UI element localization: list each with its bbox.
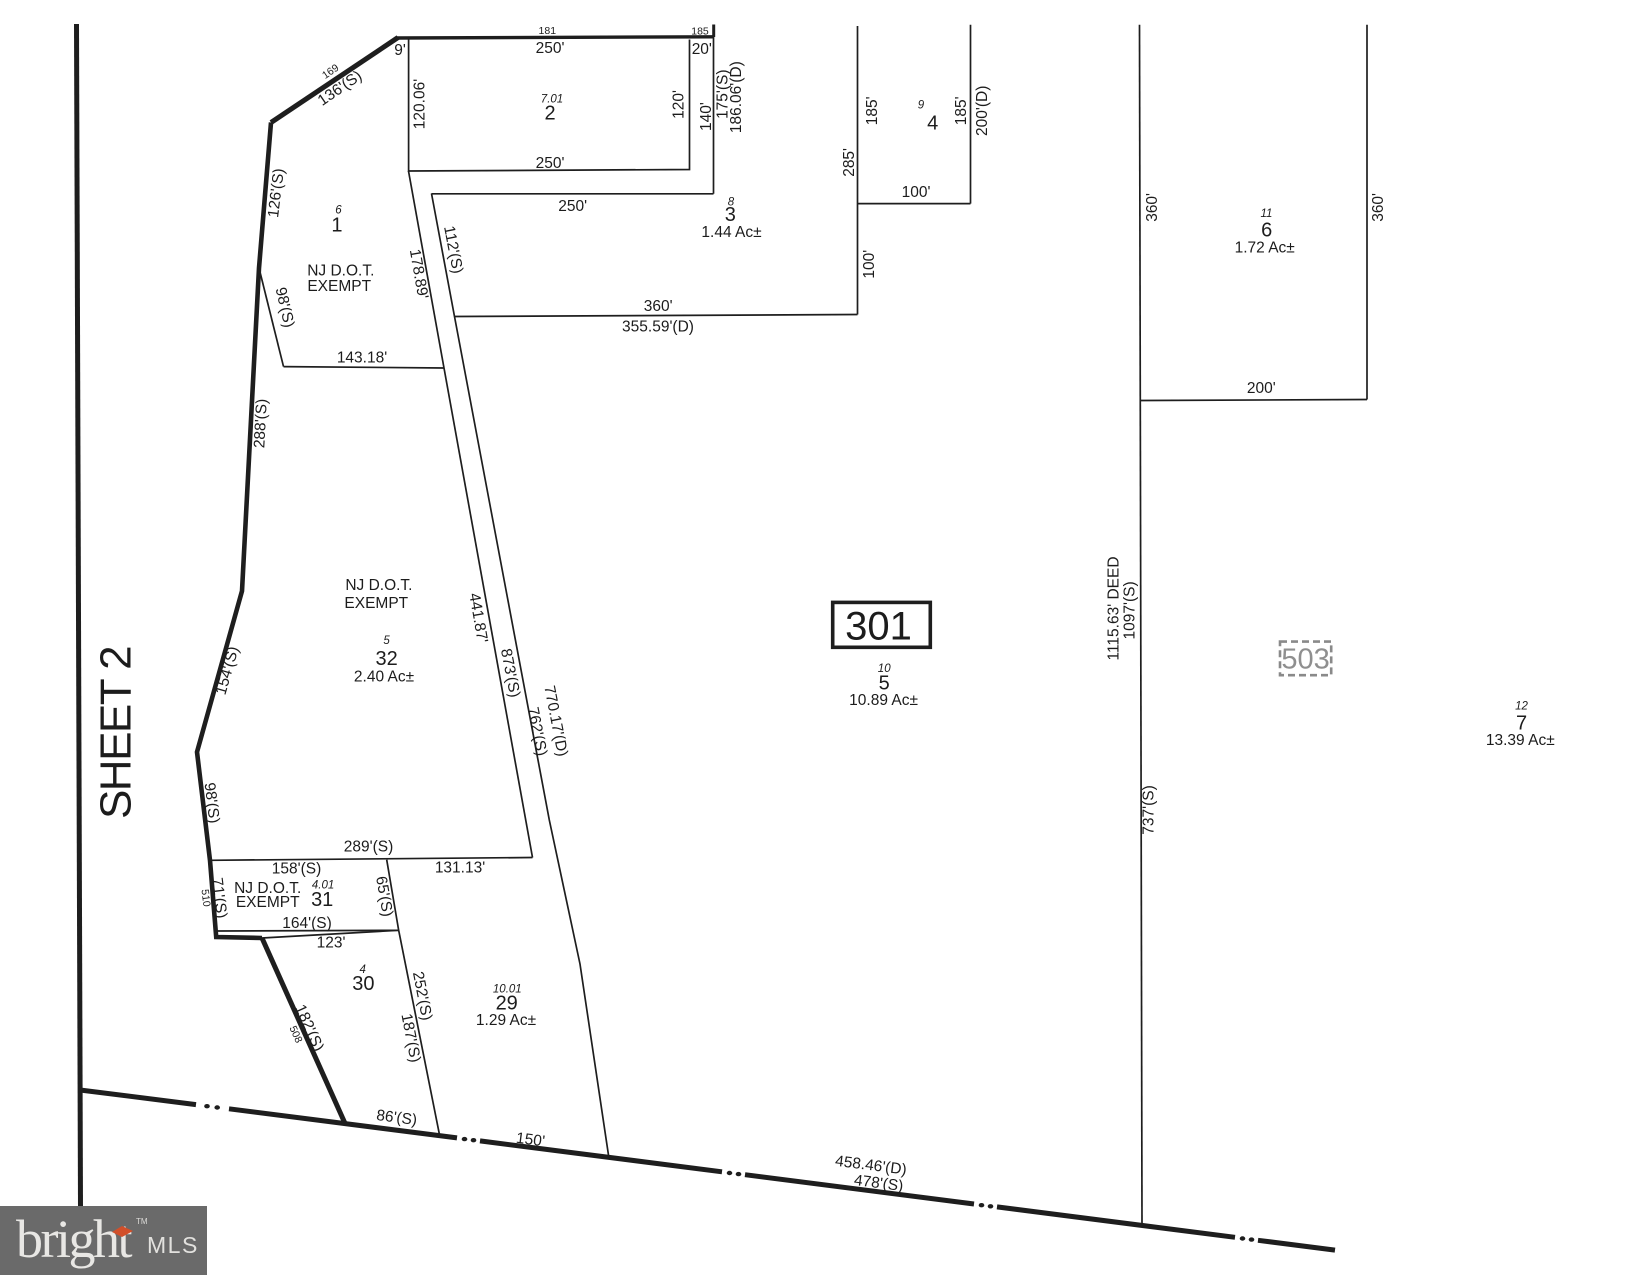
- svg-text:285': 285': [841, 148, 858, 177]
- svg-text:123': 123': [317, 935, 346, 952]
- svg-text:100': 100': [902, 184, 931, 201]
- svg-text:185': 185': [864, 96, 881, 125]
- svg-text:30: 30: [352, 973, 374, 995]
- svg-text:360': 360': [1144, 193, 1161, 222]
- svg-text:1115.63' DEED: 1115.63' DEED: [1105, 556, 1122, 660]
- svg-text:10.89 Ac±: 10.89 Ac±: [849, 692, 918, 709]
- svg-text:9: 9: [918, 100, 925, 112]
- svg-text:bright: bright: [16, 1209, 132, 1269]
- svg-text:301: 301: [845, 605, 912, 649]
- svg-text:150': 150': [515, 1130, 546, 1151]
- svg-text:250': 250': [536, 40, 565, 57]
- svg-text:200': 200': [1247, 380, 1276, 397]
- svg-text:185': 185': [953, 96, 970, 125]
- svg-text:158'(S): 158'(S): [272, 861, 321, 878]
- svg-text:100': 100': [861, 250, 878, 279]
- svg-text:140': 140': [698, 102, 715, 131]
- svg-text:EXEMPT: EXEMPT: [344, 595, 408, 612]
- svg-text:20': 20': [692, 41, 712, 58]
- svg-text:288'(S): 288'(S): [251, 398, 271, 448]
- svg-text:2.40 Ac±: 2.40 Ac±: [354, 669, 415, 686]
- svg-text:12: 12: [1515, 701, 1528, 713]
- svg-text:1.44 Ac±: 1.44 Ac±: [701, 224, 762, 241]
- svg-text:120.06': 120.06': [412, 79, 429, 129]
- svg-text:1: 1: [331, 215, 342, 237]
- svg-text:EXEMPT: EXEMPT: [236, 894, 300, 911]
- svg-text:1.29 Ac±: 1.29 Ac±: [476, 1012, 537, 1029]
- svg-text:120': 120': [670, 90, 687, 119]
- svg-text:164'(S): 164'(S): [282, 915, 331, 932]
- svg-text:1097'(S): 1097'(S): [1122, 581, 1139, 639]
- svg-text:250': 250': [536, 155, 565, 172]
- svg-text:185: 185: [691, 26, 709, 38]
- svg-text:181: 181: [539, 25, 557, 37]
- svg-text:MLS: MLS: [147, 1232, 199, 1258]
- svg-text:1.72 Ac±: 1.72 Ac±: [1235, 240, 1296, 257]
- svg-text:143.18': 143.18': [337, 350, 387, 367]
- svg-text:5: 5: [383, 635, 390, 647]
- svg-text:TM: TM: [136, 1217, 148, 1226]
- svg-text:360': 360': [644, 298, 673, 315]
- svg-text:4: 4: [927, 113, 938, 135]
- svg-text:186.06'(D): 186.06'(D): [728, 61, 745, 133]
- svg-text:3: 3: [725, 204, 736, 226]
- svg-text:EXEMPT: EXEMPT: [307, 278, 371, 295]
- svg-text:NJ D.O.T.: NJ D.O.T.: [345, 577, 412, 594]
- svg-text:31: 31: [311, 889, 333, 911]
- svg-text:9': 9': [394, 42, 406, 59]
- svg-text:13.39 Ac±: 13.39 Ac±: [1486, 732, 1555, 749]
- svg-text:289'(S): 289'(S): [344, 839, 393, 856]
- svg-text:510: 510: [198, 889, 212, 908]
- svg-text:2: 2: [544, 103, 555, 125]
- svg-text:737'(S): 737'(S): [1141, 785, 1158, 834]
- svg-text:131.13': 131.13': [435, 860, 485, 877]
- svg-text:200'(D): 200'(D): [974, 86, 991, 136]
- svg-text:355.59'(D): 355.59'(D): [622, 319, 694, 336]
- svg-text:6: 6: [1261, 220, 1272, 242]
- svg-text:503: 503: [1281, 643, 1329, 675]
- svg-text:360': 360': [1370, 193, 1387, 222]
- svg-text:250': 250': [558, 198, 587, 215]
- svg-text:11: 11: [1261, 208, 1273, 220]
- svg-text:29: 29: [496, 992, 518, 1014]
- svg-text:NJ D.O.T.: NJ D.O.T.: [307, 263, 374, 280]
- svg-text:32: 32: [375, 648, 397, 670]
- svg-text:SHEET 2: SHEET 2: [92, 647, 141, 819]
